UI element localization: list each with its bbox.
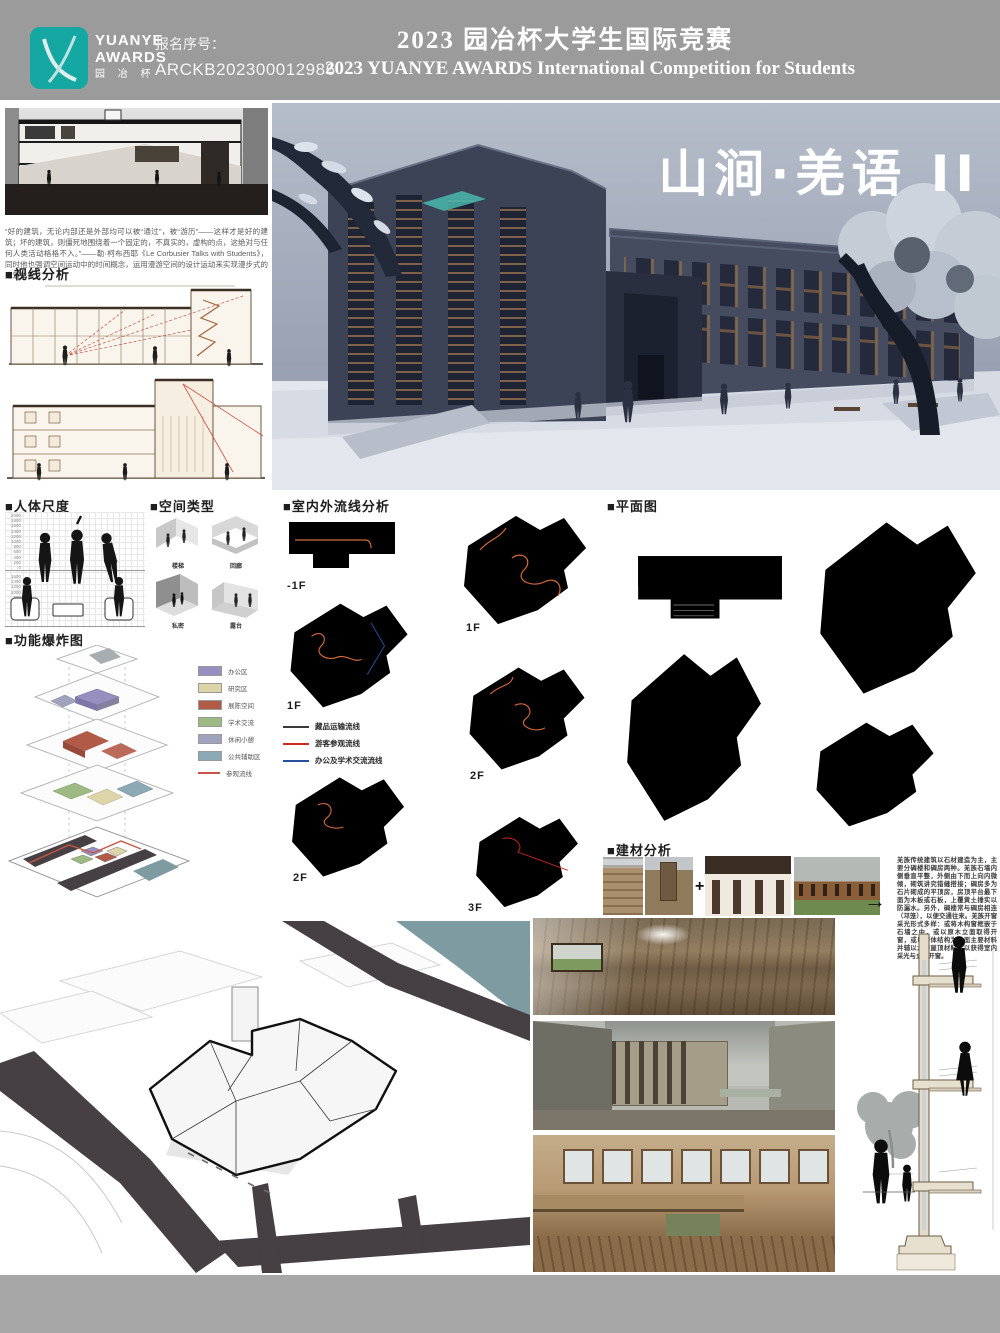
legend-route-line bbox=[198, 772, 220, 774]
legend-line bbox=[283, 726, 309, 728]
circulation-plan-b1 bbox=[283, 514, 401, 574]
space-type-private: 私密 bbox=[150, 572, 206, 630]
competition-title-en: 2023 YUANYE AWARDS International Competi… bbox=[300, 58, 880, 80]
circulation-plan-1f-right bbox=[452, 510, 598, 630]
human-scale-diagram: 20001800 16001400 12001000 800600 400200… bbox=[5, 512, 145, 628]
sightline-section-drawing-1 bbox=[5, 280, 268, 372]
legend-item: 办公区 bbox=[198, 662, 268, 679]
floor-label: 2F bbox=[470, 770, 485, 782]
circulation-plan-3f-right bbox=[458, 812, 596, 912]
space-type-grid: 楼梯 回廊 私密 bbox=[150, 512, 266, 628]
arrow-right-icon: → bbox=[864, 888, 886, 914]
project-title: 山涧·羌语 II bbox=[658, 145, 980, 203]
yuanye-logo-icon bbox=[30, 27, 88, 89]
hero-render: 山涧·羌语 II bbox=[272, 103, 1000, 490]
cad-plan-3f bbox=[805, 712, 945, 837]
competition-poster: YUANYE AWARDS 园 冶 杯 报名序号： ARCKB202300012… bbox=[0, 0, 1000, 1333]
section-header-plans: ■平面图 bbox=[607, 496, 658, 515]
material-photo-qiang-village bbox=[603, 857, 643, 915]
legend-item: 休闲小憩 bbox=[198, 730, 268, 747]
sightline-section-drawing-2 bbox=[5, 372, 268, 490]
floor-label: 2F bbox=[293, 872, 308, 884]
legend-swatch bbox=[198, 666, 222, 676]
floor-label: 1F bbox=[287, 700, 302, 712]
legend-swatch bbox=[198, 717, 222, 727]
legend-swatch bbox=[198, 734, 222, 744]
render-courtyard bbox=[533, 1021, 835, 1130]
space-type-stairs: 楼梯 bbox=[150, 512, 206, 570]
material-photo-timber-facade bbox=[705, 856, 791, 916]
legend-item: 游客参观流线 bbox=[283, 735, 383, 752]
legend-swatch bbox=[198, 683, 222, 693]
space-type-terrace: 露台 bbox=[208, 572, 264, 630]
cad-plan-1f bbox=[805, 513, 991, 703]
legend-item: 藏品运输流线 bbox=[283, 718, 383, 735]
legend-swatch bbox=[198, 700, 222, 710]
poster-header: YUANYE AWARDS 园 冶 杯 报名序号： ARCKB202300012… bbox=[0, 0, 1000, 100]
floor-label: 3F bbox=[468, 902, 483, 914]
circulation-plan-2f-left bbox=[281, 772, 415, 882]
site-axonometric bbox=[0, 921, 530, 1273]
floor-label: 1F bbox=[466, 622, 481, 634]
circulation-legend: 藏品运输流线 游客参观流线 办公及学术交流流线 bbox=[283, 718, 383, 769]
registration-label: 报名序号： bbox=[155, 34, 336, 54]
circulation-plan-1f-left bbox=[279, 598, 419, 713]
space-type-corridor: 回廊 bbox=[208, 512, 264, 570]
plus-icon: + bbox=[695, 878, 704, 896]
legend-item: 办公及学术交流流线 bbox=[283, 752, 383, 769]
section-render-thumbnail bbox=[5, 108, 268, 215]
render-interior-hall bbox=[533, 1135, 835, 1272]
legend-swatch bbox=[198, 751, 222, 761]
legend-item: 研究区 bbox=[198, 679, 268, 696]
legend-item: 展陈空间 bbox=[198, 696, 268, 713]
hero-building-illustration: 山涧·羌语 II bbox=[272, 103, 1000, 490]
wall-section-detail bbox=[855, 930, 1000, 1272]
legend-line bbox=[283, 760, 309, 762]
material-photo-watchtower bbox=[645, 857, 693, 915]
legend-item: 公共辅助区 bbox=[198, 747, 268, 764]
human-figures bbox=[5, 512, 145, 628]
legend-item: 参观流线 bbox=[198, 764, 268, 781]
footer-band bbox=[0, 1275, 1000, 1333]
competition-title-cn: 2023 园冶杯大学生国际竞赛 bbox=[330, 20, 800, 56]
render-interior-corridor bbox=[533, 918, 835, 1015]
legend-line bbox=[283, 743, 309, 745]
section-header-circulation: ■室内外流线分析 bbox=[283, 496, 390, 515]
floor-label: -1F bbox=[287, 580, 307, 592]
cad-plan-basement bbox=[630, 540, 790, 632]
cad-plan-2f bbox=[614, 645, 774, 830]
legend-item: 学术交流 bbox=[198, 713, 268, 730]
circulation-plan-2f-right bbox=[458, 662, 596, 775]
function-legend: 办公区 研究区 展陈空间 学术交流 休闲小憩 公共辅助区 参观流线 bbox=[198, 662, 268, 781]
function-explode-diagram bbox=[5, 645, 195, 933]
